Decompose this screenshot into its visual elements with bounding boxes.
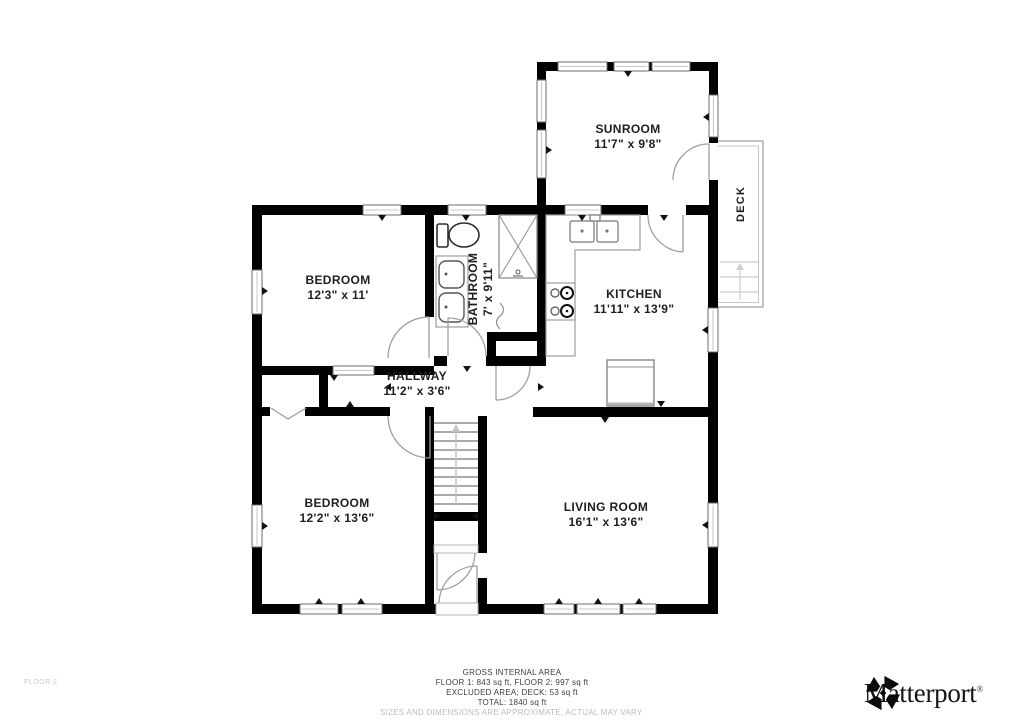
room-dims: 16'1" x 13'6" [564, 515, 649, 530]
room-label-kitchen: KITCHEN 11'11" x 13'9" [594, 287, 675, 317]
front-door [439, 566, 477, 604]
plumbing-squiggle [497, 303, 504, 329]
room-label-living-room: LIVING ROOM 16'1" x 13'6" [564, 500, 649, 530]
sunroom-kitchen-door [648, 215, 683, 252]
matterport-logo: Matterport® [864, 674, 983, 712]
stove [546, 283, 575, 320]
room-name: BEDROOM [304, 496, 369, 510]
vestibule-inner-door [437, 552, 475, 590]
staircase [434, 423, 478, 505]
toilet [437, 223, 479, 247]
thresholds [434, 545, 478, 615]
shower [499, 215, 537, 278]
room-label-hallway: HALLWAY 11'2" x 3'6" [383, 369, 450, 399]
room-dims: 12'2" x 13'6" [299, 511, 374, 526]
room-label-deck: DECK [735, 186, 747, 222]
matterport-logo-icon [864, 674, 902, 712]
room-dims: 7' x 9'11" [481, 253, 496, 326]
room-label-bedroom-top: BEDROOM 12'3" x 11' [305, 273, 370, 303]
room-label-sunroom: SUNROOM 11'7" x 9'8" [594, 122, 661, 152]
room-label-bedroom-bottom: BEDROOM 12'2" x 13'6" [299, 496, 374, 526]
room-name: KITCHEN [606, 287, 662, 301]
bedroom-bottom-door [388, 416, 430, 458]
room-name: SUNROOM [595, 122, 660, 136]
closet-door [496, 366, 530, 400]
room-dims: 11'11" x 13'9" [594, 302, 675, 317]
room-dims: 11'7" x 9'8" [594, 137, 661, 152]
refrigerator [607, 360, 654, 406]
deck [718, 141, 763, 307]
room-name: LIVING ROOM [564, 500, 649, 514]
room-name: BATHROOM [466, 253, 480, 326]
room-dims: 11'2" x 3'6" [383, 384, 450, 399]
registered-mark: ® [976, 684, 983, 694]
room-name: HALLWAY [387, 369, 447, 383]
room-name: BEDROOM [305, 273, 370, 287]
bedroom-top-door [388, 317, 429, 358]
sunroom-deck-door [673, 144, 709, 180]
room-label-bathroom: BATHROOM 7' x 9'11" [466, 253, 496, 326]
deck-steps-up-arrow [736, 263, 744, 300]
stairs-up-arrow [452, 424, 460, 505]
floorplan-page: SUNROOM 11'7" x 9'8" BEDROOM 12'3" x 11'… [0, 0, 1024, 724]
floorplan-drawing [0, 0, 1024, 724]
bifold-closet-door [271, 408, 306, 419]
room-dims: 12'3" x 11' [305, 288, 370, 303]
vanity-sinks [436, 256, 468, 327]
